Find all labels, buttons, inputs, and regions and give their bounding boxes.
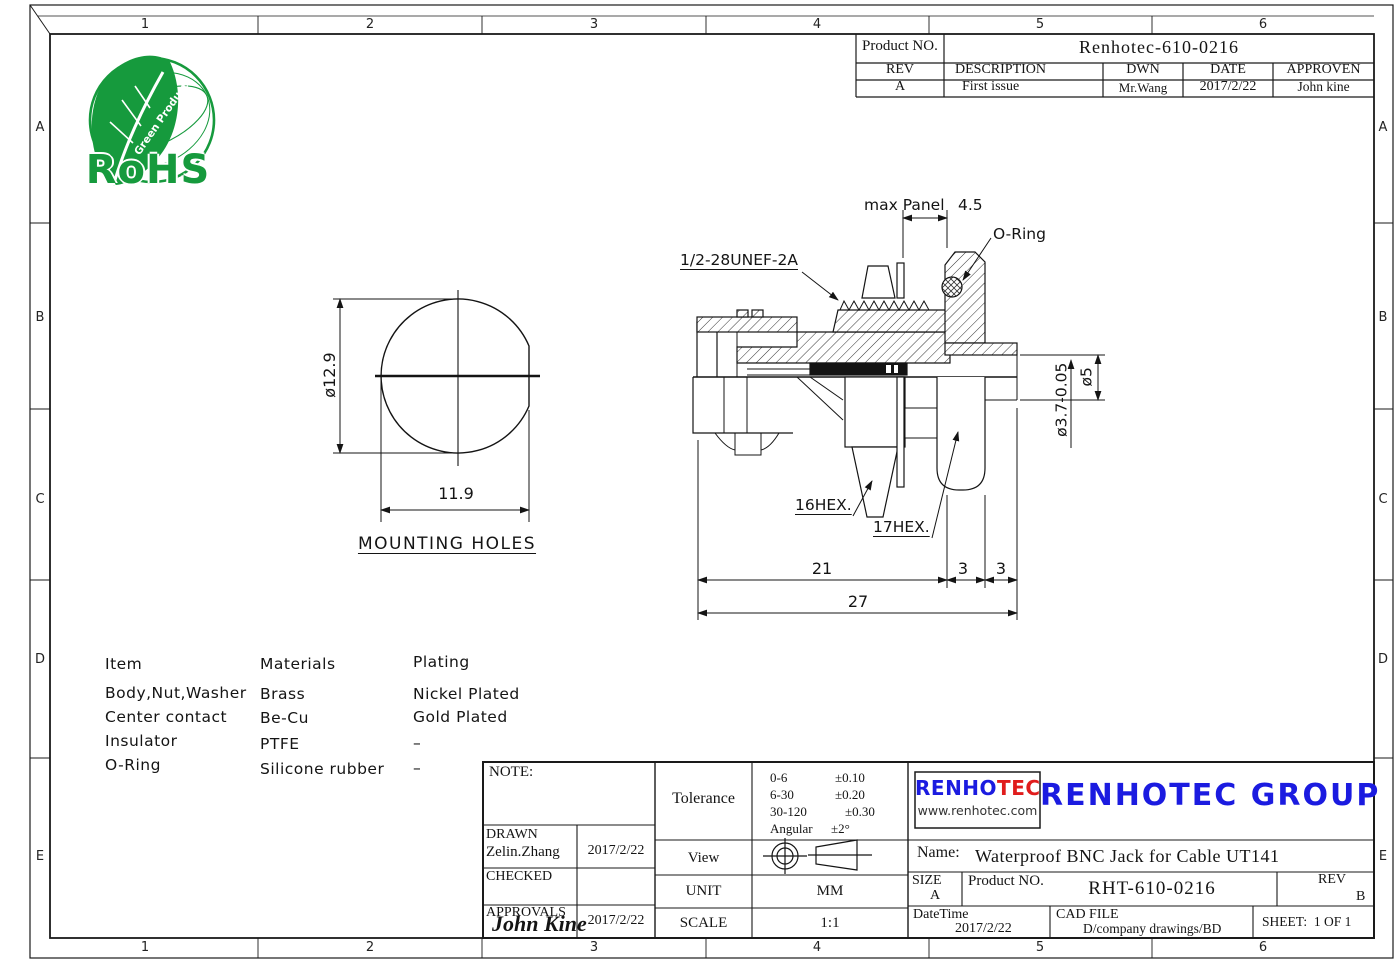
materials-row4-plating: – xyxy=(413,761,421,777)
checked-label: CHECKED xyxy=(486,870,552,884)
zone-label-top-5: 5 xyxy=(1020,18,1060,31)
tolerance-range-1: 0-6 xyxy=(770,771,787,784)
section-dim-3a: 3 xyxy=(948,561,978,577)
rev-header-rev: REV xyxy=(856,63,944,77)
size-label: SIZE xyxy=(912,874,942,888)
materials-row3-plating: – xyxy=(413,736,421,752)
tolerance-value-3: ±0.30 xyxy=(845,805,875,818)
zone-label-right-c: C xyxy=(1373,493,1393,506)
approvals-date: 2017/2/22 xyxy=(577,914,655,928)
projection-view-symbol xyxy=(763,838,872,874)
materials-header-materials: Materials xyxy=(260,657,336,673)
zone-label-left-c: C xyxy=(30,493,50,506)
zone-label-left-d: D xyxy=(30,653,50,666)
materials-row2-item: Center contact xyxy=(105,710,227,726)
section-view-graphic xyxy=(693,210,1105,620)
zone-label-top-3: 3 xyxy=(574,18,614,31)
zone-label-bottom-6: 6 xyxy=(1243,941,1283,954)
zone-label-bottom-3: 3 xyxy=(574,941,614,954)
materials-row4-material: Silicone rubber xyxy=(260,762,384,778)
section-label-hex16: 16HEX. xyxy=(795,498,852,514)
zone-label-bottom-5: 5 xyxy=(1020,941,1060,954)
unit-label: UNIT xyxy=(655,884,752,899)
rev-row-description: First issue xyxy=(962,80,1019,94)
rev-header-description: DESCRIPTION xyxy=(955,63,1046,77)
zone-label-right-d: D xyxy=(1373,653,1393,666)
engineering-drawing-sheet: 1 2 3 4 5 6 1 2 3 4 5 6 A B C D E A B C … xyxy=(0,0,1397,962)
section-dim-3b: 3 xyxy=(986,561,1016,577)
zone-label-left-e: E xyxy=(30,850,50,863)
tolerance-range-2: 6-30 xyxy=(770,788,794,801)
zone-label-top-2: 2 xyxy=(350,18,390,31)
materials-row2-plating: Gold Plated xyxy=(413,710,508,726)
zone-label-right-a: A xyxy=(1373,121,1393,134)
materials-row1-material: Brass xyxy=(260,687,305,703)
drawn-label: DRAWN xyxy=(486,828,538,842)
rev-row-rev: A xyxy=(856,80,944,94)
note-label: NOTE: xyxy=(489,765,533,780)
rev-header-dwn: DWN xyxy=(1103,63,1183,77)
zone-label-left-b: B xyxy=(30,311,50,324)
rev-label: REV xyxy=(1318,873,1346,887)
company-logo-part1: RENHO xyxy=(915,776,997,800)
materials-row2-material: Be-Cu xyxy=(260,711,309,727)
materials-row4-item: O-Ring xyxy=(105,758,161,774)
tolerance-label: Tolerance xyxy=(655,791,752,807)
section-dim-21: 21 xyxy=(802,561,842,577)
part-name-label: Name: xyxy=(917,845,960,861)
tolerance-range-3: 30-120 xyxy=(770,805,807,818)
rev-row-date: 2017/2/22 xyxy=(1183,80,1273,94)
section-label-oring: O-Ring xyxy=(993,227,1046,243)
zone-label-right-b: B xyxy=(1373,311,1393,324)
drawn-name: Zelin.Zhang xyxy=(486,845,560,860)
zone-label-top-4: 4 xyxy=(797,18,837,31)
mounting-dim-width: 11.9 xyxy=(426,486,486,502)
section-label-max-panel-value: 4.5 xyxy=(958,198,983,214)
materials-row1-plating: Nickel Plated xyxy=(413,687,520,703)
datetime-label: DateTime xyxy=(913,908,968,922)
rev-row-dwn: Mr.Wang xyxy=(1103,81,1183,94)
tolerance-value-2: ±0.20 xyxy=(835,788,865,801)
zone-label-top-6: 6 xyxy=(1243,18,1283,31)
view-label: View xyxy=(655,851,752,866)
mounting-dim-diameter: ø12.9 xyxy=(322,335,338,415)
section-dim-dia37: ø3.7-0.05 xyxy=(1054,355,1070,445)
mounting-view-title: MOUNTING HOLES xyxy=(351,536,543,553)
section-label-hex17: 17HEX. xyxy=(873,520,930,536)
rev-product-value: Renhotec-610-0216 xyxy=(944,38,1374,56)
scale-value: 1:1 xyxy=(752,916,908,931)
zone-label-right-e: E xyxy=(1373,850,1393,863)
drawn-date: 2017/2/22 xyxy=(577,844,655,858)
zone-label-bottom-2: 2 xyxy=(350,941,390,954)
section-label-thread: 1/2-28UNEF-2A xyxy=(680,253,798,269)
unit-value: MM xyxy=(752,884,908,899)
section-dim-dia5: ø5 xyxy=(1079,357,1095,397)
rev-header-approven: APPROVEN xyxy=(1273,63,1374,77)
datetime-value: 2017/2/22 xyxy=(955,922,1012,936)
zone-label-bottom-4: 4 xyxy=(797,941,837,954)
size-value: A xyxy=(908,889,962,903)
sheet-value: 1 OF 1 xyxy=(1314,914,1352,929)
company-logo: RENHOTEC xyxy=(915,778,1040,798)
zone-label-left-a: A xyxy=(30,121,50,134)
tolerance-value-4: ±2° xyxy=(831,822,850,835)
tolerance-value-1: ±0.10 xyxy=(835,771,865,784)
rev-header-date: DATE xyxy=(1183,63,1273,77)
rev-value: B xyxy=(1356,890,1365,904)
scale-label: SCALE xyxy=(655,916,752,931)
sheet-frame xyxy=(30,5,1393,958)
cad-file-label: CAD FILE xyxy=(1056,908,1119,922)
rohs-logo-text: RoHS xyxy=(78,150,218,190)
part-name-value: Waterproof BNC Jack for Cable UT141 xyxy=(975,847,1279,865)
materials-header-plating: Plating xyxy=(413,655,470,671)
rev-product-label: Product NO. xyxy=(862,39,938,54)
cad-file-value: D/company drawings/BD xyxy=(1083,922,1221,936)
zone-label-bottom-1: 1 xyxy=(125,941,165,954)
materials-row1-item: Body,Nut,Washer xyxy=(105,686,247,702)
section-label-max-panel: max Panel xyxy=(864,198,945,214)
company-logo-part2: TEC xyxy=(997,776,1040,800)
materials-header-item: Item xyxy=(105,657,142,673)
drawing-linework xyxy=(0,0,1397,962)
zone-label-top-1: 1 xyxy=(125,18,165,31)
sheet-info: SHEET: 1 OF 1 xyxy=(1262,915,1351,929)
tolerance-range-4: Angular xyxy=(770,822,813,835)
materials-row3-material: PTFE xyxy=(260,737,300,753)
company-name: RENHOTEC GROUP xyxy=(1040,781,1374,811)
product-no-value: RHT-610-0216 xyxy=(1032,879,1272,898)
materials-row3-item: Insulator xyxy=(105,734,178,750)
section-dim-27: 27 xyxy=(838,594,878,610)
sheet-label: SHEET: xyxy=(1262,914,1307,929)
rev-row-approven: John kine xyxy=(1273,80,1374,94)
approvals-signature: John Kine xyxy=(492,913,587,935)
company-logo-url: www.renhotec.com xyxy=(915,805,1040,818)
